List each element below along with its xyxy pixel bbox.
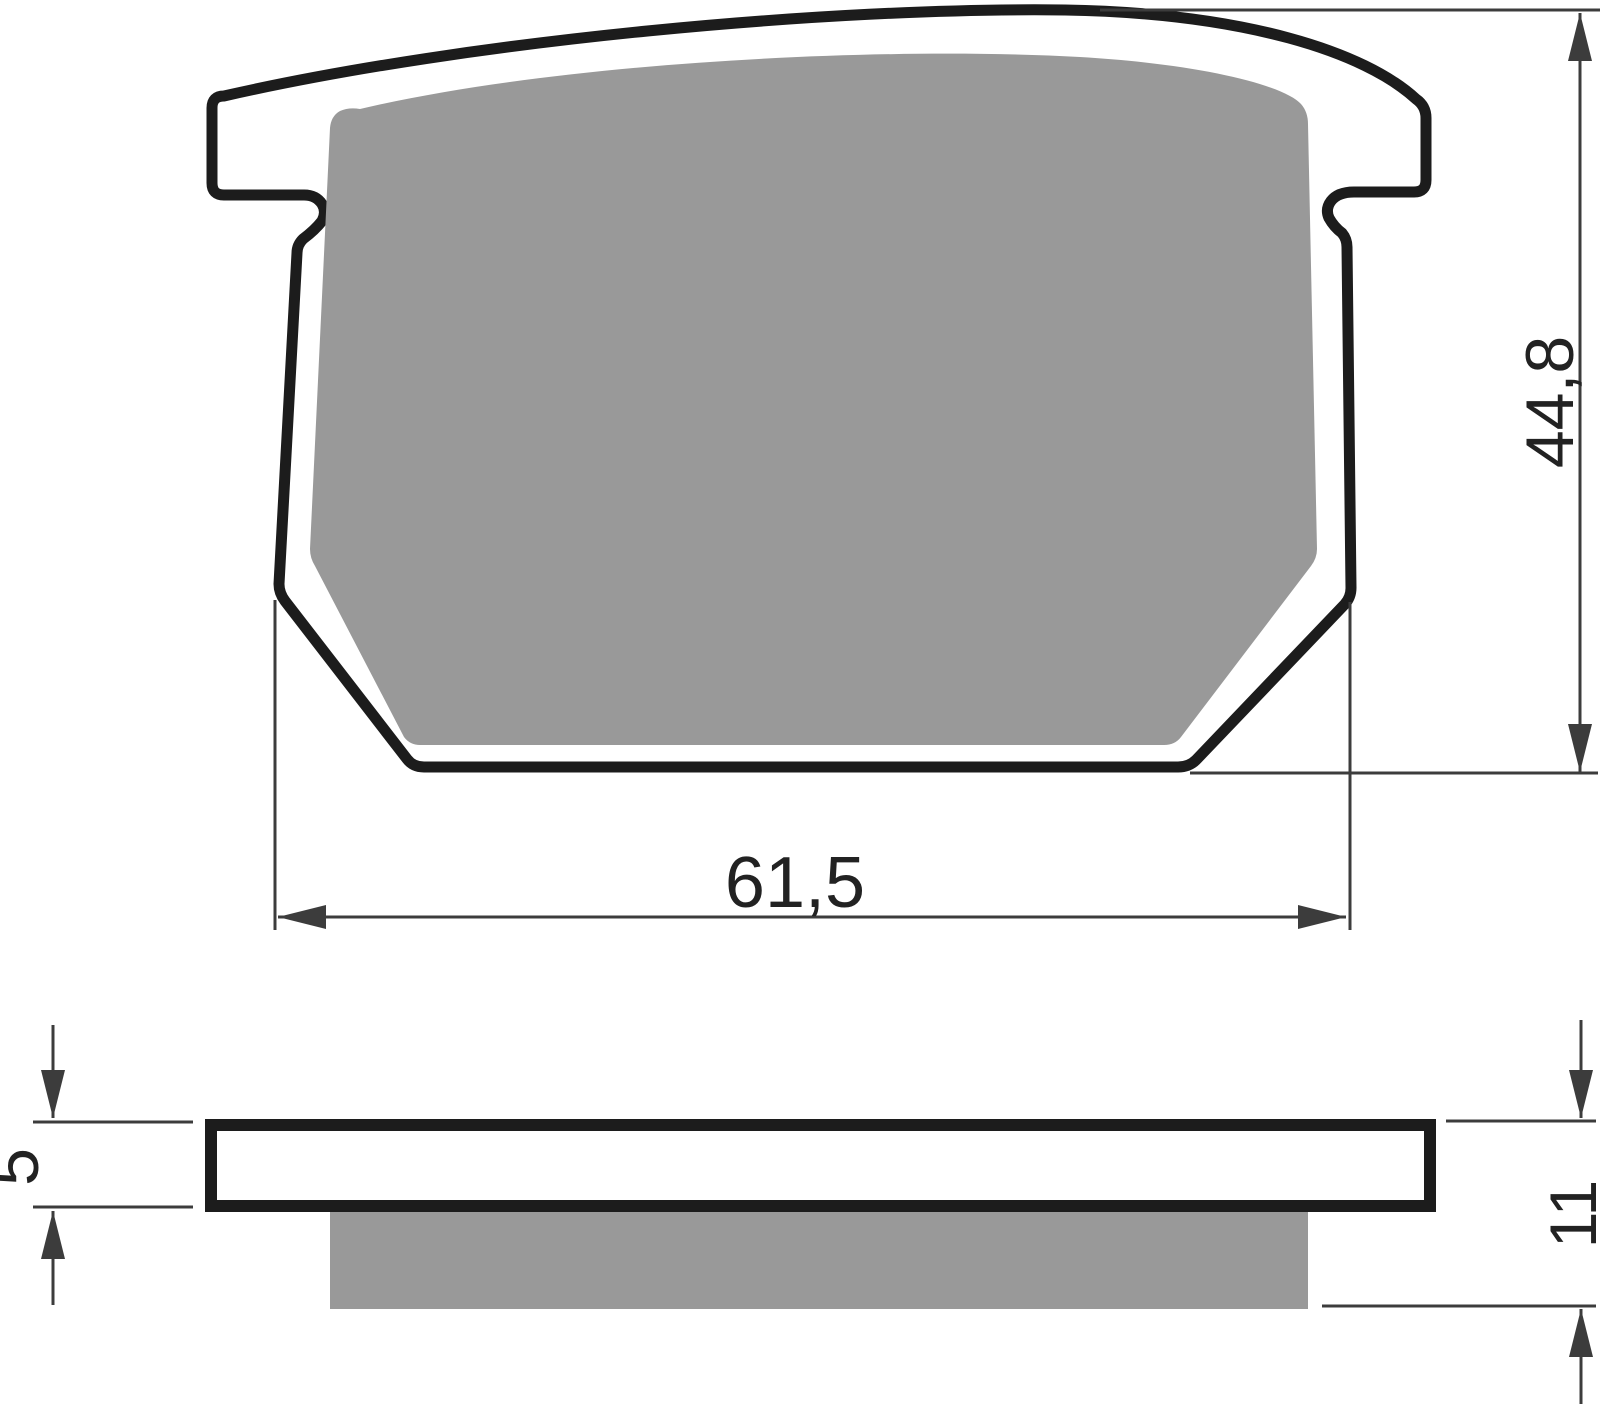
plate-thickness-label: 5 <box>0 1148 53 1186</box>
arrow-down-icon <box>1568 724 1592 772</box>
technical-drawing-canvas: 61,5 44,8 5 <box>0 0 1600 1404</box>
arrow-down-icon <box>1569 1070 1593 1118</box>
front-view: 61,5 44,8 <box>212 10 1600 930</box>
arrow-left-icon <box>278 905 326 929</box>
arrow-down-icon <box>41 1070 65 1118</box>
brake-pad-drawing: 61,5 44,8 5 <box>0 0 1600 1404</box>
dim-plate-thickness: 5 <box>0 1025 193 1305</box>
height-dim-label: 44,8 <box>1512 336 1588 468</box>
width-dim-label: 61,5 <box>725 843 865 923</box>
arrow-up-icon <box>1568 13 1592 61</box>
friction-material-side <box>330 1212 1308 1309</box>
backing-plate-side <box>211 1125 1430 1206</box>
overall-thickness-label: 11 <box>1536 1180 1600 1249</box>
side-view: 5 11 <box>0 1020 1600 1404</box>
friction-material-front <box>310 54 1317 745</box>
arrow-right-icon <box>1298 905 1346 929</box>
